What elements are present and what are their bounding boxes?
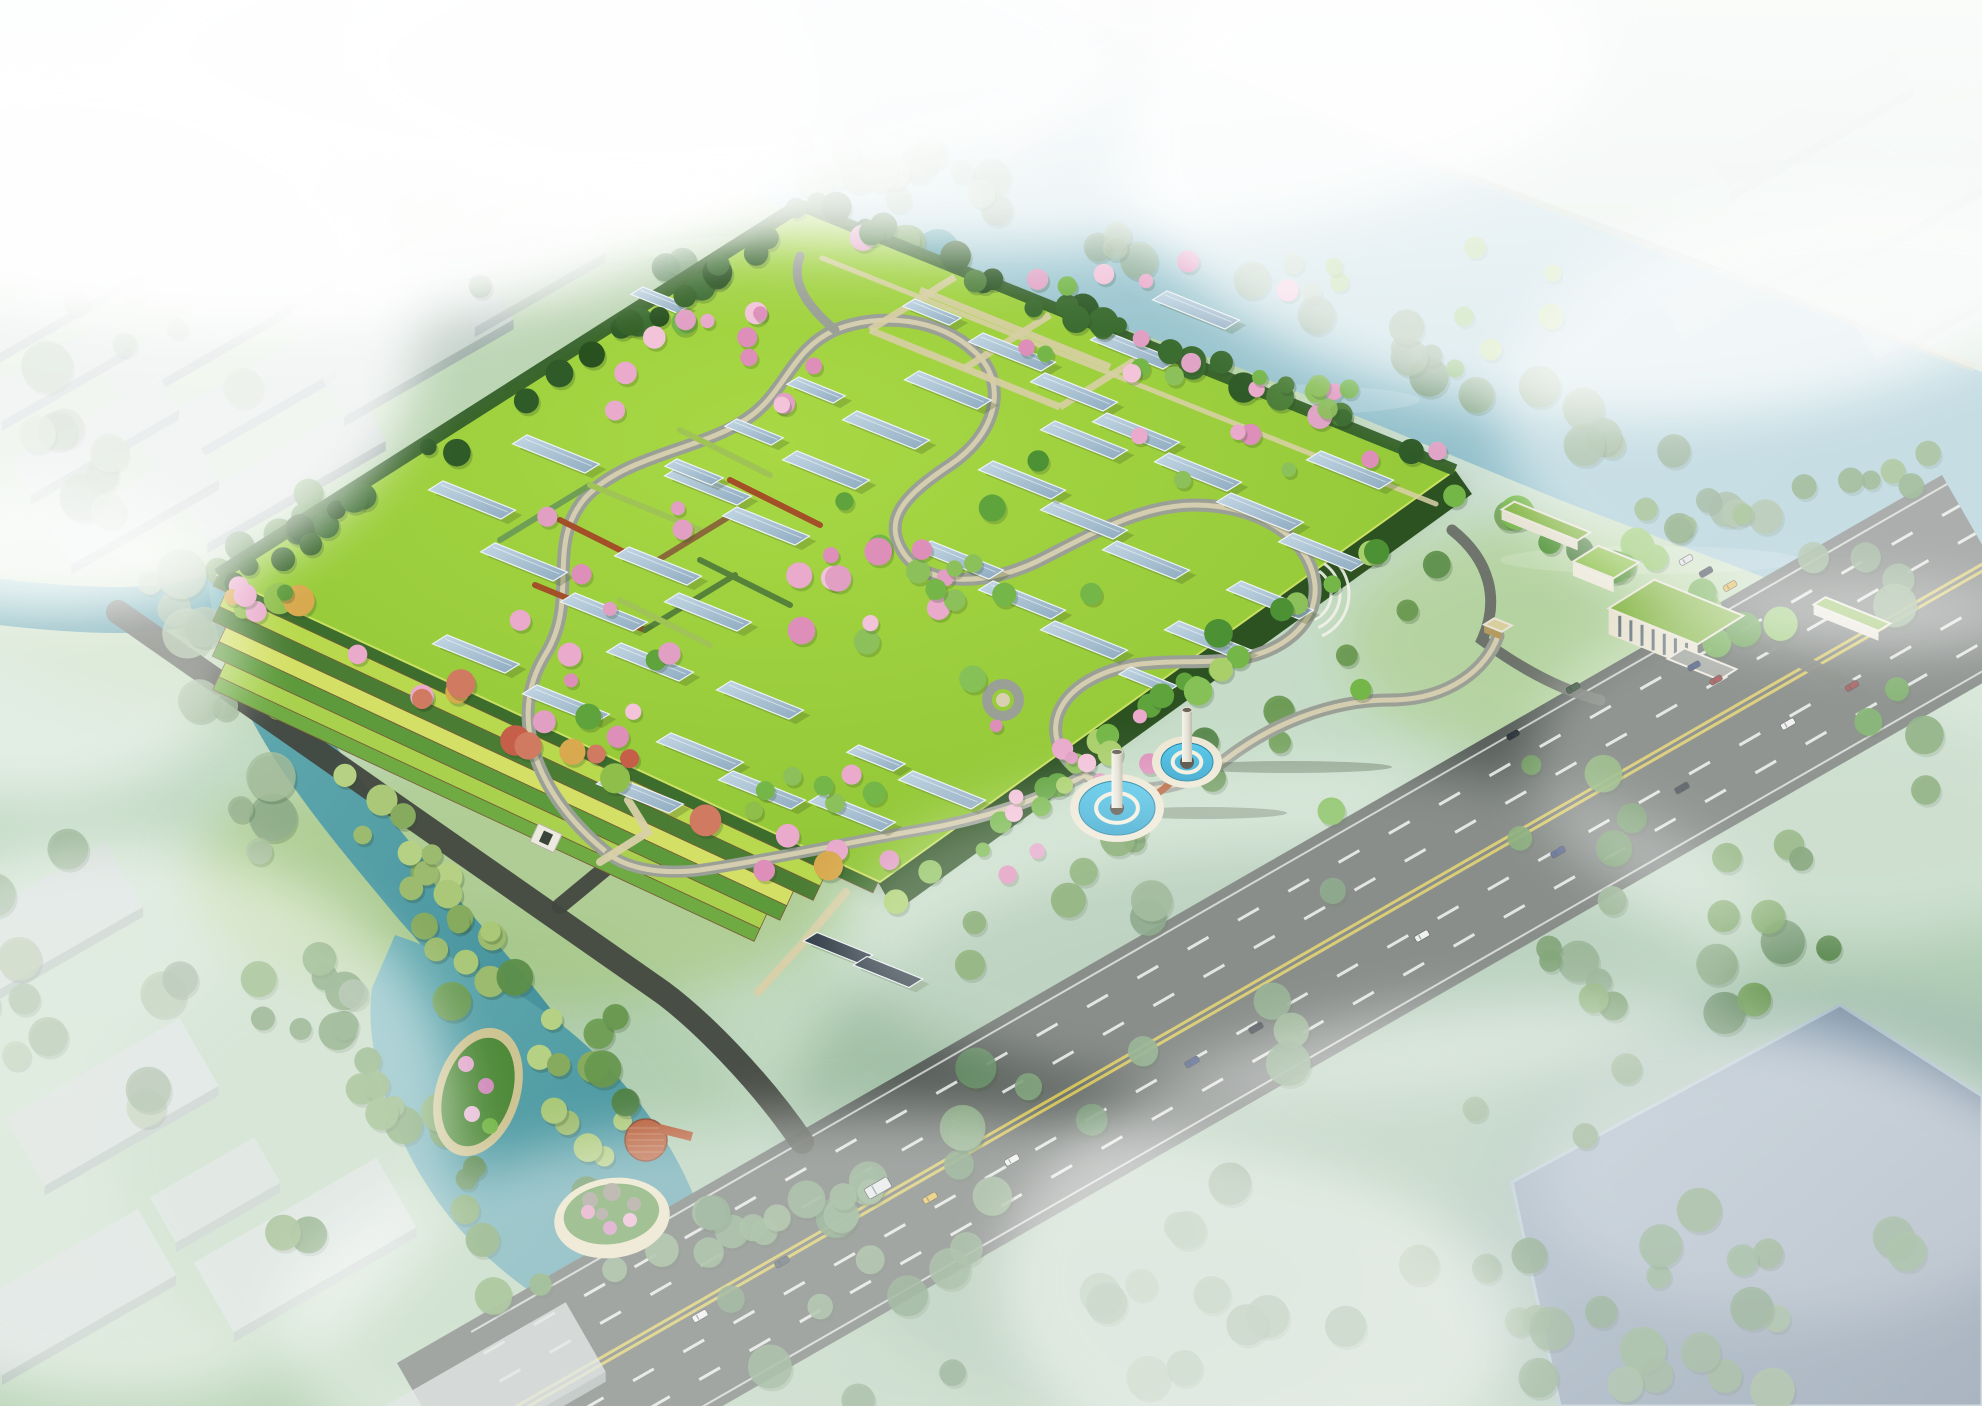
tree (671, 501, 685, 515)
tree (587, 745, 606, 764)
tree (773, 397, 790, 414)
tree (348, 645, 368, 665)
tree (823, 547, 839, 563)
tree (432, 982, 471, 1021)
tree (673, 519, 693, 539)
tree (1308, 375, 1330, 397)
tree (412, 689, 432, 709)
tree (246, 838, 272, 864)
tree (835, 492, 853, 510)
tree (805, 357, 822, 374)
tree (1027, 450, 1048, 471)
tree (783, 767, 802, 786)
tree (541, 1008, 563, 1030)
tree (1210, 351, 1233, 374)
tree (443, 439, 471, 467)
tree (753, 860, 775, 882)
tree (862, 615, 878, 631)
tree (842, 765, 862, 785)
tree (1133, 709, 1147, 723)
tree (422, 844, 442, 864)
tree (756, 781, 775, 800)
tree (1174, 471, 1192, 489)
tree (863, 782, 886, 805)
tree (1158, 339, 1183, 364)
tree (1184, 677, 1213, 706)
tree (1165, 366, 1184, 385)
tree (1080, 583, 1102, 605)
tree (1252, 370, 1267, 385)
tree (690, 805, 722, 837)
tree (546, 359, 574, 387)
tree (964, 554, 982, 572)
tree (740, 349, 757, 366)
tree (1737, 983, 1771, 1017)
tree (612, 1088, 640, 1116)
tree (1078, 754, 1097, 773)
tree (1340, 379, 1359, 398)
tree (1317, 399, 1338, 420)
tree (1037, 346, 1053, 362)
tree (246, 752, 296, 802)
tree (571, 564, 591, 584)
tree (979, 494, 1006, 521)
tree (1397, 599, 1419, 621)
tree (353, 826, 372, 845)
tree (990, 719, 1003, 732)
stack-opening (1182, 707, 1192, 712)
tree (424, 937, 448, 961)
tree (228, 796, 254, 822)
tree (1281, 462, 1296, 477)
tree (1015, 1073, 1042, 1100)
aerial-rendering-stage: Aerial architectural rendering of a roof… (0, 0, 1982, 1406)
tree (575, 704, 601, 730)
island-blossom (478, 1078, 494, 1094)
tree (1423, 551, 1451, 579)
tree (510, 610, 531, 631)
tree (788, 617, 816, 645)
island-blossom (458, 1056, 474, 1072)
tree (1123, 364, 1142, 383)
tree (1443, 485, 1466, 508)
tree (825, 565, 851, 591)
tree (1149, 683, 1174, 708)
tree (564, 673, 578, 687)
tree (625, 704, 641, 720)
tree (1181, 353, 1201, 373)
tree (605, 400, 625, 420)
tree (420, 439, 437, 456)
tree (514, 388, 539, 413)
island-blossom (464, 1106, 480, 1122)
tree (658, 642, 680, 664)
tree (1364, 539, 1389, 564)
tree (620, 749, 639, 768)
tree (607, 726, 629, 748)
tree (776, 824, 800, 848)
tree (1209, 658, 1233, 682)
tree (912, 539, 932, 559)
tree (1230, 425, 1245, 440)
tree (1204, 619, 1233, 648)
tree (390, 803, 416, 829)
tree (496, 959, 533, 996)
stack-opening (1112, 749, 1123, 754)
island-blossom (482, 1118, 498, 1134)
tree (1399, 439, 1424, 464)
tree (537, 507, 557, 527)
vent-stack (1182, 710, 1192, 762)
tree (925, 579, 946, 600)
tree (433, 880, 462, 909)
tree (614, 362, 637, 385)
tree (1361, 451, 1379, 469)
tree (1133, 330, 1150, 347)
aerial-park-rendering: Aerial architectural rendering of a roof… (0, 0, 1982, 1406)
tree (959, 665, 986, 692)
tree (814, 776, 834, 796)
tree (1336, 644, 1358, 666)
tree (584, 1050, 621, 1087)
tree (1270, 598, 1294, 622)
tree (448, 912, 470, 934)
tree (906, 559, 930, 583)
tree (1131, 428, 1148, 445)
tree (446, 669, 475, 698)
tree (454, 950, 479, 975)
tree (277, 585, 293, 601)
tree (533, 710, 556, 733)
tree (558, 643, 582, 667)
tree (398, 841, 423, 866)
path-circle-center (996, 693, 1010, 707)
tree (814, 851, 843, 880)
tree (333, 764, 356, 787)
tree (579, 341, 605, 367)
tree (737, 327, 757, 347)
tree (745, 801, 763, 819)
tree (786, 562, 812, 588)
tree (559, 739, 585, 765)
tree (480, 921, 500, 941)
tree (1065, 751, 1078, 764)
tree (603, 1004, 629, 1030)
tree (992, 583, 1016, 607)
tree (514, 732, 541, 759)
tree (411, 913, 438, 940)
tree (1277, 376, 1294, 393)
tree (603, 602, 617, 616)
tree (1018, 339, 1034, 355)
tree (399, 876, 423, 900)
tree (946, 560, 962, 576)
tree (1428, 442, 1447, 461)
tree (1323, 575, 1340, 592)
tree (541, 1098, 567, 1124)
tree (547, 1053, 570, 1076)
tree (1350, 679, 1371, 700)
tree (864, 538, 892, 566)
